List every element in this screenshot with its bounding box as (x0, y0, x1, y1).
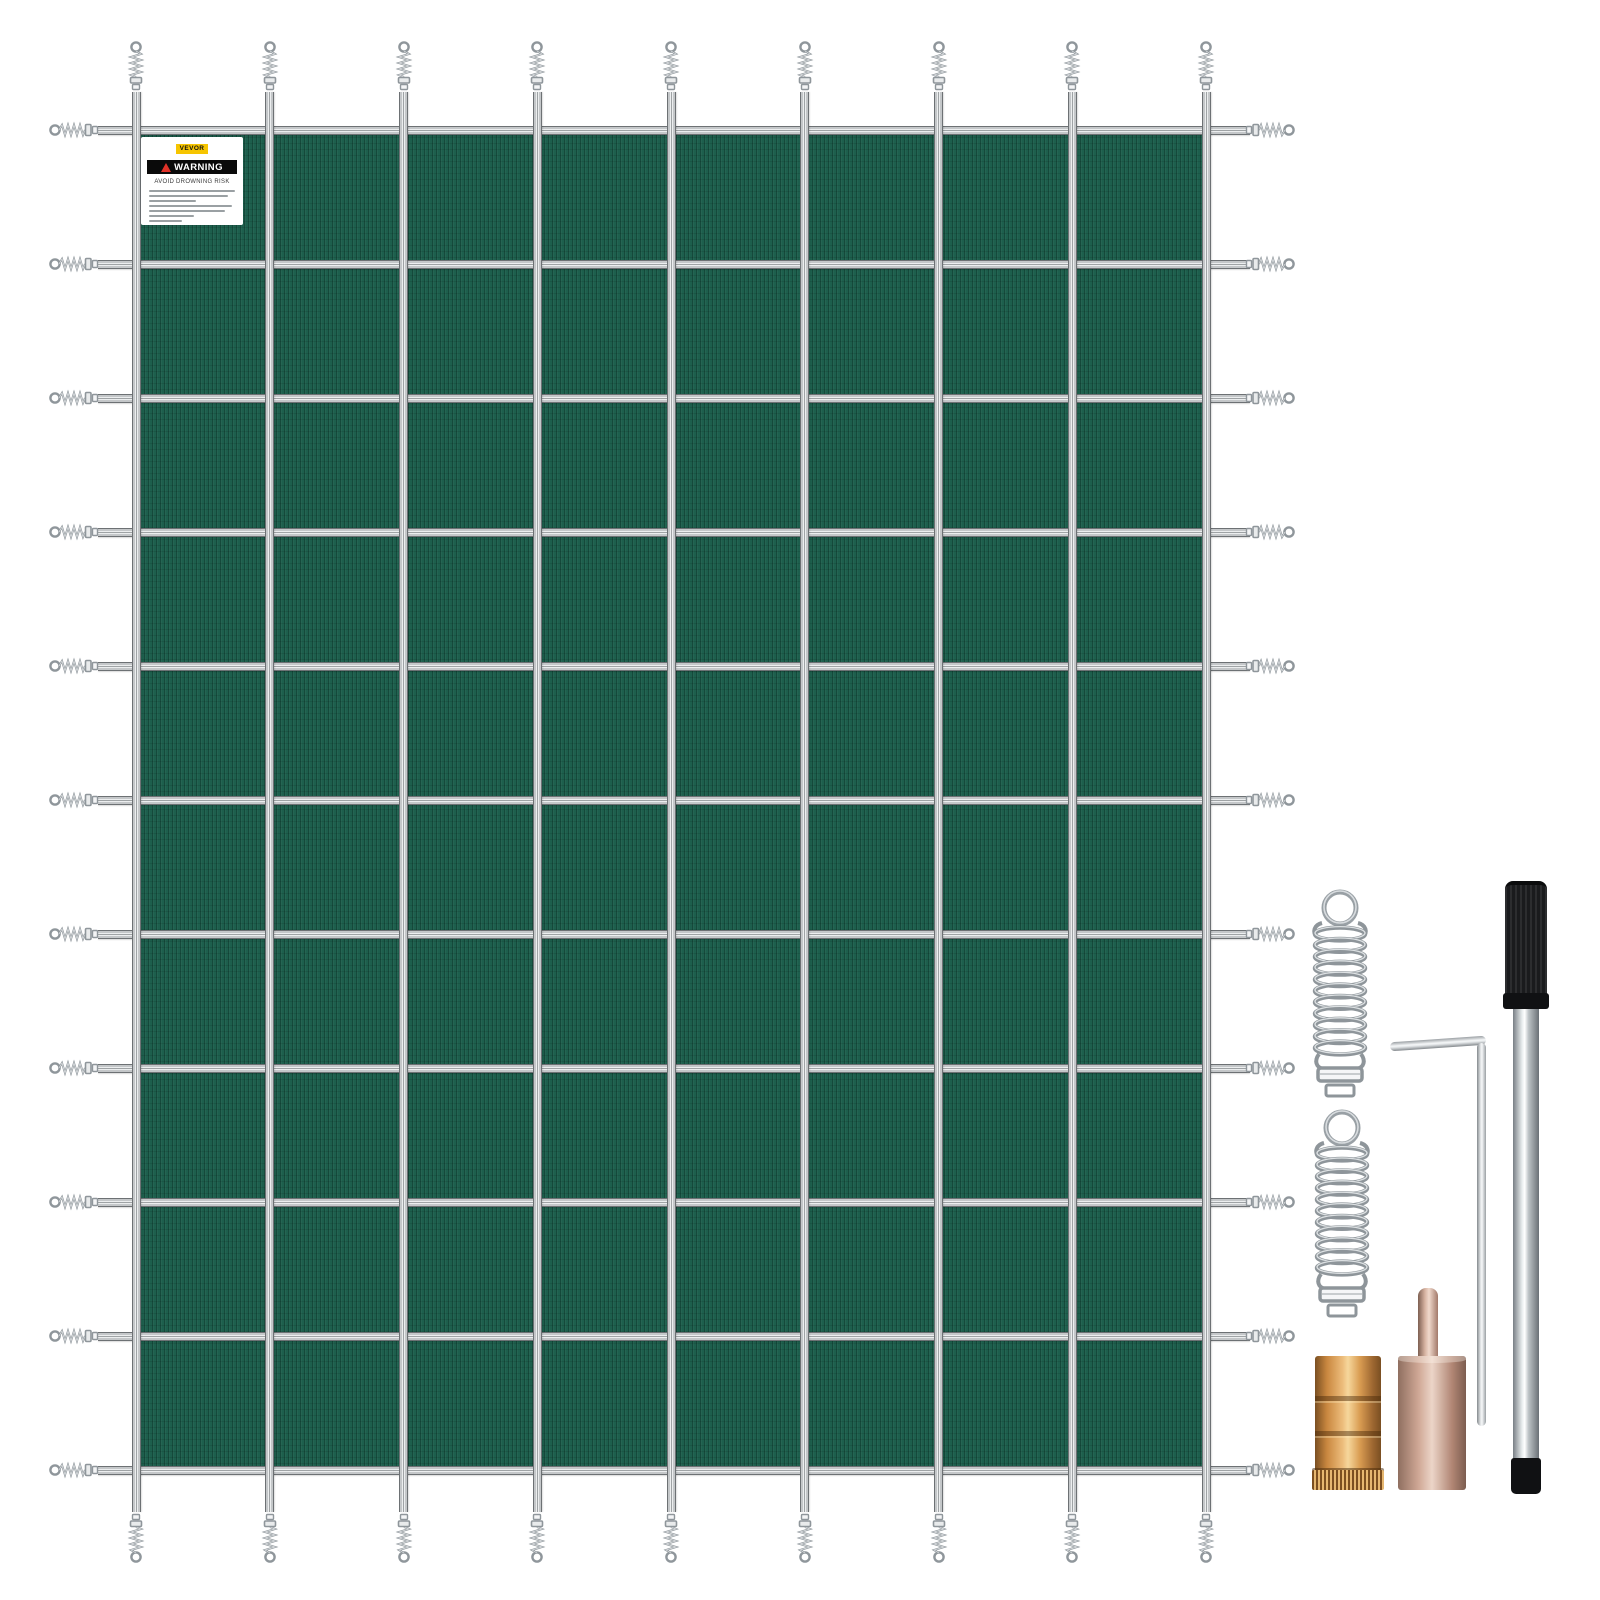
strap-spring-end-top (930, 40, 948, 96)
hex-key-icon (1390, 1036, 1486, 1052)
strap-spring-end-right (1240, 121, 1296, 139)
strap-spring-end-right (1240, 523, 1296, 541)
strap-spring-end-right (1240, 1193, 1296, 1211)
fine-print-line (149, 190, 235, 192)
strap-spring-end-bottom (261, 1508, 279, 1564)
strap-spring-end-bottom (796, 1508, 814, 1564)
anchor-knurl (1312, 1470, 1384, 1490)
strap-spring-end-right (1240, 925, 1296, 943)
strap-spring-end-left (48, 657, 104, 675)
strap-spring-end-right (1240, 1461, 1296, 1479)
strap-spring-end-top (662, 40, 680, 96)
anchor-groove (1315, 1431, 1381, 1436)
strap-spring-end-right (1240, 657, 1296, 675)
warning-subtitle: AVOID DROWNING RISK (141, 179, 243, 185)
strap-spring-end-top (796, 40, 814, 96)
strap-spring-end-right (1240, 791, 1296, 809)
fine-print-line (149, 195, 228, 197)
strap-spring-end-top (528, 40, 546, 96)
strap-spring-end-top (261, 40, 279, 96)
tamping-tool-stem (1418, 1288, 1438, 1360)
product-photo: VEVOR WARNING AVOID DROWNING RISK (0, 0, 1600, 1600)
strap-spring-end-left (48, 1327, 104, 1345)
anchor-spring (1302, 886, 1378, 1101)
strap-spring-end-bottom (395, 1508, 413, 1564)
strap-spring-end-right (1240, 389, 1296, 407)
cover-strap-vertical (934, 92, 943, 1512)
strap-spring-end-right (1240, 255, 1296, 273)
brass-anchor (1315, 1356, 1381, 1490)
strap-spring-end-top (395, 40, 413, 96)
strap-spring-end-top (1197, 40, 1215, 96)
strap-spring-end-top (1063, 40, 1081, 96)
anchor-spring (1304, 1106, 1380, 1321)
strap-spring-end-left (48, 389, 104, 407)
cover-strap-vertical (667, 92, 676, 1512)
cover-strap-vertical (800, 92, 809, 1512)
fine-print-line (149, 215, 194, 217)
fine-print-block (149, 190, 235, 222)
cover-strap-vertical (265, 92, 274, 1512)
strap-spring-end-bottom (662, 1508, 680, 1564)
strap-spring-end-top (127, 40, 145, 96)
fine-print-line (149, 220, 182, 222)
strap-spring-end-left (48, 1461, 104, 1479)
strap-spring-end-left (48, 925, 104, 943)
brand-logo: VEVOR (176, 144, 209, 154)
rod-handle (1505, 881, 1547, 997)
cover-strap-vertical (399, 92, 408, 1512)
cover-strap-vertical (132, 92, 141, 1512)
anchor-groove (1315, 1396, 1381, 1401)
cover-strap-vertical (1068, 92, 1077, 1512)
strap-spring-end-bottom (1197, 1508, 1215, 1564)
fine-print-line (149, 210, 225, 212)
warning-label: VEVOR WARNING AVOID DROWNING RISK (141, 137, 243, 225)
strap-spring-end-right (1240, 1327, 1296, 1345)
rod-collar (1503, 993, 1549, 1009)
strap-spring-end-left (48, 121, 104, 139)
strap-spring-end-bottom (930, 1508, 948, 1564)
rod-shaft (1513, 1009, 1539, 1461)
fine-print-line (149, 200, 196, 202)
strap-spring-end-left (48, 1059, 104, 1077)
strap-spring-end-bottom (1063, 1508, 1081, 1564)
warning-title: WARNING (174, 162, 223, 173)
rod-tip (1511, 1458, 1541, 1494)
tamping-tool-body (1398, 1356, 1466, 1490)
cover-strap-vertical (533, 92, 542, 1512)
fine-print-line (149, 205, 232, 207)
warning-header: WARNING (147, 160, 237, 174)
hex-key-icon (1477, 1043, 1486, 1426)
strap-spring-end-left (48, 255, 104, 273)
strap-spring-end-left (48, 523, 104, 541)
warning-triangle-icon (161, 163, 171, 172)
strap-spring-end-left (48, 1193, 104, 1211)
strap-spring-end-bottom (528, 1508, 546, 1564)
strap-spring-end-left (48, 791, 104, 809)
strap-spring-end-bottom (127, 1508, 145, 1564)
cover-strap-vertical (1202, 92, 1211, 1512)
strap-spring-end-right (1240, 1059, 1296, 1077)
